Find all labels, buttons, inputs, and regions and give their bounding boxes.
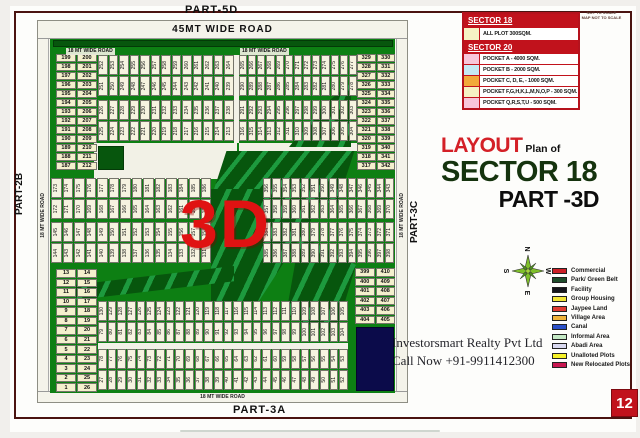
plot-cell-143: 143 [63,243,74,263]
plot-cell-322: 322 [357,117,376,125]
plot-cell-259: 259 [172,55,182,75]
plot-cell-232: 232 [161,100,171,120]
plot-cell-327: 327 [357,72,376,80]
plot-cell-409: 409 [376,278,396,287]
plot-cell-82: 82 [127,322,136,342]
sector-table-row: POCKET C, D, E, - 1000 SQM. [464,75,578,86]
plot-cell-210: 210 [77,144,97,152]
plot-cell-346: 346 [357,178,365,198]
plot-cell-146: 146 [63,222,74,242]
plot-cell-333: 333 [377,81,396,89]
plot-cell-101: 101 [310,322,319,342]
plot-cell-39: 39 [214,370,223,390]
plot-cell-280: 280 [331,76,339,96]
plot-cell-391: 391 [320,243,328,263]
plot-cell-125: 125 [146,301,155,321]
plot-cell-345: 345 [367,178,375,198]
plot-cell-235: 235 [193,100,203,120]
plot-cell-88: 88 [185,322,194,342]
plot-cell-265: 265 [239,55,247,75]
plot-cell-52: 52 [339,370,348,390]
legend-item: Jaypee Land [552,306,630,312]
plot-cell-310: 310 [294,121,302,141]
legend-item: Abadi Area [552,343,630,349]
plot-cell-242: 242 [193,76,203,96]
plot-cell-14: 14 [77,269,97,278]
legend-item: Group Housing [552,296,630,302]
plot-cell-304: 304 [349,121,357,141]
legend-swatch [552,296,567,302]
plot-cell-330: 330 [377,54,396,62]
plot-cell-6: 6 [56,336,76,345]
plot-column-1-26: 1314121511161017918819720621522423324225… [56,269,97,393]
plot-cell-169: 169 [86,199,97,219]
legend-label: Park/ Green Belt [571,277,618,283]
plot-cell-50: 50 [320,370,329,390]
plot-cell-68: 68 [195,349,204,369]
plot-cell-299: 299 [312,100,320,120]
plot-cell-337: 337 [377,117,396,125]
plot-cell-296: 296 [285,100,293,120]
compass-rose-icon: N W E S [500,240,556,302]
plot-cell-9: 9 [56,307,76,316]
plot-cell-90: 90 [204,322,213,342]
plot-cell-92: 92 [224,322,233,342]
plot-cell-349: 349 [329,178,337,198]
plot-cell-22: 22 [77,345,97,354]
plot-cell-126: 126 [137,301,146,321]
plot-cell-361: 361 [301,199,309,219]
plot-cell-237: 237 [214,100,224,120]
park-area-small [98,146,124,170]
plot-cell-106: 106 [330,301,339,321]
plot-cell-25: 25 [77,374,97,383]
road-label-18mt-top-left: 18 MT WIDE ROAD [66,48,115,55]
plot-cell-144: 144 [51,243,62,263]
road-label-18mt-top-right: 18 MT WIDE ROAD [240,48,289,55]
plot-cell-383: 383 [272,222,280,242]
plot-cell-241: 241 [203,76,213,96]
legend-label: Jaypee Land [571,306,607,312]
plot-cell-195: 195 [56,90,76,98]
plot-cell-290: 290 [239,76,247,96]
plot-cell-368: 368 [367,199,375,219]
road-label-part-5d: PART-5D [185,4,238,16]
plot-cell-134: 134 [166,243,177,263]
plot-cell-93: 93 [233,322,242,342]
legend-item: Park/ Green Belt [552,277,630,283]
plot-cell-198: 198 [56,63,76,71]
plot-cell-314: 314 [257,121,265,141]
plot-cell-410: 410 [376,268,396,277]
plot-block-356-370: 3563553543533523513503493483473463453443… [263,178,394,220]
plot-cell-292: 292 [248,100,256,120]
plot-cell-201: 201 [77,63,97,71]
plot-cell-182: 182 [155,178,166,198]
plot-cell-374: 374 [357,222,365,242]
plot-cell-328: 328 [357,63,376,71]
plot-cell-294: 294 [266,100,274,120]
plot-cell-218: 218 [172,121,182,141]
plot-cell-1: 1 [56,383,76,392]
pocket-label: POCKET Q,R,S,T,U - 500 SQM. [480,98,578,108]
plot-cell-323: 323 [357,108,376,116]
plot-cell-311: 311 [285,121,293,141]
plot-cell-11: 11 [56,288,76,297]
plot-cell-181: 181 [143,178,154,198]
plot-cell-205: 205 [77,99,97,107]
title-part: PART -3D [441,187,599,211]
plot-cell-300: 300 [321,100,329,120]
plot-cell-177: 177 [97,178,108,198]
plot-cell-213: 213 [224,121,234,141]
contact-phone: Call Now +91-9911412300 [392,352,560,370]
plot-cell-209: 209 [77,135,97,143]
plot-cell-289: 289 [248,76,256,96]
plot-cell-240: 240 [214,76,224,96]
plot-cell-288: 288 [257,76,265,96]
plot-block-78-52: 7877767574737271706968676665646362616059… [98,349,348,391]
plot-cell-245: 245 [161,76,171,96]
plot-cell-360: 360 [291,199,299,219]
plot-cell-271: 271 [294,55,302,75]
plot-cell-56: 56 [310,349,319,369]
plot-cell-406: 406 [376,306,396,315]
plot-cell-308: 308 [312,121,320,141]
plot-cell-188: 188 [56,153,76,161]
plot-cell-340: 340 [377,144,396,152]
plot-cell-228: 228 [119,100,129,120]
plot-cell-165: 165 [132,199,143,219]
plot-cell-10: 10 [56,298,76,307]
plot-cell-316: 316 [239,121,247,141]
plot-cell-24: 24 [77,364,97,373]
plot-cell-197: 197 [56,72,76,80]
map-plot-area: 18 MT WIDE ROAD 18 MT WIDE ROAD 25225325… [50,39,395,393]
plot-cell-358: 358 [272,199,280,219]
sector-18-rows: ALL PLOT 300SQM. [464,27,578,40]
plot-cell-7: 7 [56,326,76,335]
plot-cell-102: 102 [320,322,329,342]
plot-column-399-410: 399410400409401408402407403406404405 [355,268,395,325]
plot-cell-285: 285 [285,76,293,96]
plot-cell-317: 317 [357,162,376,170]
plot-cell-99: 99 [291,322,300,342]
plot-cell-221: 221 [140,121,150,141]
plot-cell-359: 359 [282,199,290,219]
plot-cell-47: 47 [291,370,300,390]
plot-cell-276: 276 [340,55,348,75]
plot-cell-168: 168 [97,199,108,219]
plot-cell-338: 338 [377,126,396,134]
sector-table-row: POCKET Q,R,S,T,U - 500 SQM. [464,97,578,108]
plot-cell-373: 373 [367,222,375,242]
plot-cell-4: 4 [56,355,76,364]
pocket-label: POCKET F,G,H,K,L,M,N,O,P - 300 SQM. [480,87,578,97]
plot-cell-35: 35 [175,370,184,390]
plot-cell-129: 129 [108,301,117,321]
road-label-part-2b: PART-2B [14,173,25,215]
plot-cell-331: 331 [377,63,396,71]
plot-cell-370: 370 [385,199,393,219]
plot-block-252-239: 2522532542552562572582592602612622632642… [98,55,234,97]
legend-list: CommercialPark/ Green BeltFacilityGroup … [552,268,630,371]
plot-cell-108: 108 [310,301,319,321]
plot-cell-38: 38 [204,370,213,390]
plot-cell-207: 207 [77,117,97,125]
plot-cell-295: 295 [276,100,284,120]
plot-cell-244: 244 [172,76,182,96]
plot-cell-267: 267 [257,55,265,75]
watermark-3d: 3D [180,185,271,263]
pocket-label: POCKET A - 4000 SQM. [480,54,578,64]
plot-cell-100: 100 [301,322,310,342]
plot-cell-227: 227 [109,100,119,120]
plot-cell-72: 72 [156,349,165,369]
plot-cell-73: 73 [146,349,155,369]
plot-cell-402: 402 [355,297,375,306]
plot-cell-174: 174 [63,178,74,198]
plot-cell-121: 121 [185,301,194,321]
plot-cell-194: 194 [56,99,76,107]
green-belt-top [53,40,393,47]
plot-cell-341: 341 [377,153,396,161]
legend-swatch [552,277,567,283]
plot-cell-230: 230 [140,100,150,120]
title-block: LAYOUT Plan of SECTOR 18 PART -3D [441,134,599,211]
plot-cell-128: 128 [117,301,126,321]
plot-cell-63: 63 [243,349,252,369]
plot-cell-127: 127 [127,301,136,321]
plot-cell-405: 405 [376,316,396,325]
plot-cell-5: 5 [56,345,76,354]
plot-block-130-104: 1301291281271261251241231221211201191181… [98,301,348,343]
compass-s: S [502,269,509,274]
road-label-45mt: 45MT WIDE ROAD [38,21,407,39]
plot-cell-344: 344 [376,178,384,198]
plot-cell-109: 109 [301,301,310,321]
legend-item: Informal Area [552,334,630,340]
plot-cell-79: 79 [98,322,107,342]
plot-cell-151: 151 [120,222,131,242]
plot-cell-277: 277 [349,55,357,75]
plot-cell-387: 387 [282,243,290,263]
plot-cell-239: 239 [224,76,234,96]
plot-cell-193: 193 [56,108,76,116]
plot-cell-152: 152 [132,222,143,242]
sector-table-row: POCKET B - 2000 SQM. [464,64,578,75]
plot-cell-113: 113 [262,301,271,321]
plot-cell-208: 208 [77,126,97,134]
plot-cell-352: 352 [301,178,309,198]
plot-cell-187: 187 [56,162,76,170]
plot-cell-84: 84 [146,322,155,342]
plot-cell-269: 269 [276,55,284,75]
plot-cell-268: 268 [266,55,274,75]
plot-cell-87: 87 [175,322,184,342]
plot-cell-175: 175 [74,178,85,198]
plot-cell-44: 44 [262,370,271,390]
plot-cell-254: 254 [119,55,129,75]
plot-cell-347: 347 [348,178,356,198]
plot-cell-114: 114 [253,301,262,321]
plot-cell-67: 67 [204,349,213,369]
plot-cell-301: 301 [331,100,339,120]
plot-cell-255: 255 [130,55,140,75]
contact-info: Investorsmart Realty Pvt Ltd Call Now +9… [392,334,560,369]
plot-cell-111: 111 [281,301,290,321]
plot-cell-234: 234 [182,100,192,120]
plot-cell-214: 214 [214,121,224,141]
plot-cell-149: 149 [97,222,108,242]
plot-cell-284: 284 [294,76,302,96]
contact-company: Investorsmart Realty Pvt Ltd [392,334,560,352]
plot-cell-256: 256 [140,55,150,75]
plot-cell-252: 252 [98,55,108,75]
plot-cell-369: 369 [376,199,384,219]
plot-cell-297: 297 [294,100,302,120]
pocket-label: ALL PLOT 300SQM. [480,28,578,40]
plot-cell-396: 396 [367,243,375,263]
plot-cell-120: 120 [195,301,204,321]
plot-cell-324: 324 [357,99,376,107]
plot-cell-309: 309 [303,121,311,141]
plot-cell-107: 107 [320,301,329,321]
plot-cell-65: 65 [224,349,233,369]
pocket-swatch [464,76,480,86]
plot-cell-141: 141 [86,243,97,263]
plot-cell-212: 212 [77,162,97,170]
plot-cell-381: 381 [291,222,299,242]
plot-cell-293: 293 [257,100,265,120]
plot-cell-55: 55 [320,349,329,369]
legend-item: Unalloted Plots [552,353,630,359]
compass-e: E [523,291,530,296]
plot-cell-122: 122 [175,301,184,321]
plot-cell-112: 112 [272,301,281,321]
compass-w: W [544,268,551,275]
plot-cell-287: 287 [266,76,274,96]
plot-cell-407: 407 [376,297,396,306]
plot-cell-95: 95 [253,322,262,342]
plot-cell-222: 222 [130,121,140,141]
plot-cell-220: 220 [151,121,161,141]
plot-cell-248: 248 [130,76,140,96]
plot-cell-375: 375 [348,222,356,242]
legend-label: Informal Area [571,334,609,340]
sector-table-row: POCKET F,G,H,K,L,M,N,O,P - 300 SQM. [464,86,578,97]
plot-cell-173: 173 [51,178,62,198]
plot-cell-98: 98 [281,322,290,342]
plot-cell-371: 371 [385,222,393,242]
plot-cell-258: 258 [161,55,171,75]
legend-label: New Relocated Plots [571,362,630,368]
plot-cell-251: 251 [98,76,108,96]
plot-cell-238: 238 [224,100,234,120]
sector-20-header: SECTOR 20 [464,40,578,53]
plot-cell-362: 362 [310,199,318,219]
plot-cell-75: 75 [127,349,136,369]
legend-label: Group Housing [571,296,615,302]
plot-cell-388: 388 [291,243,299,263]
legend-swatch [552,315,567,321]
plot-cell-408: 408 [376,287,396,296]
plot-cell-116: 116 [233,301,242,321]
title-sector: SECTOR 18 [441,158,599,187]
plot-cell-399: 399 [355,268,375,277]
plot-cell-219: 219 [161,121,171,141]
plot-cell-2: 2 [56,374,76,383]
plot-cell-176: 176 [86,178,97,198]
plot-cell-382: 382 [282,222,290,242]
plot-cell-150: 150 [109,222,120,242]
plot-cell-183: 183 [166,178,177,198]
pocket-swatch [464,98,480,108]
plot-cell-12: 12 [56,279,76,288]
plot-cell-19: 19 [77,317,97,326]
plot-cell-204: 204 [77,90,97,98]
plot-cell-365: 365 [338,199,346,219]
plot-cell-26: 26 [77,383,97,392]
plot-cell-124: 124 [156,301,165,321]
plot-cell-18: 18 [77,307,97,316]
plot-cell-138: 138 [120,243,131,263]
plot-cell-29: 29 [117,370,126,390]
plot-cell-353: 353 [291,178,299,198]
plot-cell-260: 260 [182,55,192,75]
plot-cell-226: 226 [98,100,108,120]
plot-cell-23: 23 [77,355,97,364]
plot-cell-54: 54 [330,349,339,369]
plot-cell-115: 115 [243,301,252,321]
plot-cell-376: 376 [338,222,346,242]
plot-cell-332: 332 [377,72,396,80]
plot-cell-191: 191 [56,126,76,134]
plot-cell-172: 172 [51,199,62,219]
plot-cell-135: 135 [155,243,166,263]
plot-cell-261: 261 [193,55,203,75]
plot-cell-202: 202 [77,72,97,80]
plot-cell-148: 148 [86,222,97,242]
pocket-swatch [464,87,480,97]
plot-cell-80: 80 [108,322,117,342]
plot-cell-231: 231 [151,100,161,120]
plot-cell-351: 351 [310,178,318,198]
plot-cell-178: 178 [109,178,120,198]
plot-cell-364: 364 [329,199,337,219]
plot-cell-325: 325 [357,90,376,98]
legend-swatch [552,306,567,312]
plot-cell-400: 400 [355,278,375,287]
plot-cell-190: 190 [56,135,76,143]
plot-cell-171: 171 [63,199,74,219]
road-label-part-3a: PART-3A [233,404,286,416]
plot-cell-291: 291 [239,100,247,120]
plot-cell-85: 85 [156,322,165,342]
pocket-label: POCKET B - 2000 SQM. [480,65,578,75]
plot-cell-66: 66 [214,349,223,369]
plot-cell-281: 281 [321,76,329,96]
plot-cell-225: 225 [98,121,108,141]
plot-cell-273: 273 [312,55,320,75]
plot-cell-199: 199 [56,54,76,62]
plot-cell-59: 59 [281,349,290,369]
plot-cell-154: 154 [155,222,166,242]
plot-column-199-212: 1992001982011972021962031952041942051932… [56,54,97,168]
legend-item: New Relocated Plots [552,362,630,368]
plot-cell-394: 394 [348,243,356,263]
plot-cell-211: 211 [77,153,97,161]
